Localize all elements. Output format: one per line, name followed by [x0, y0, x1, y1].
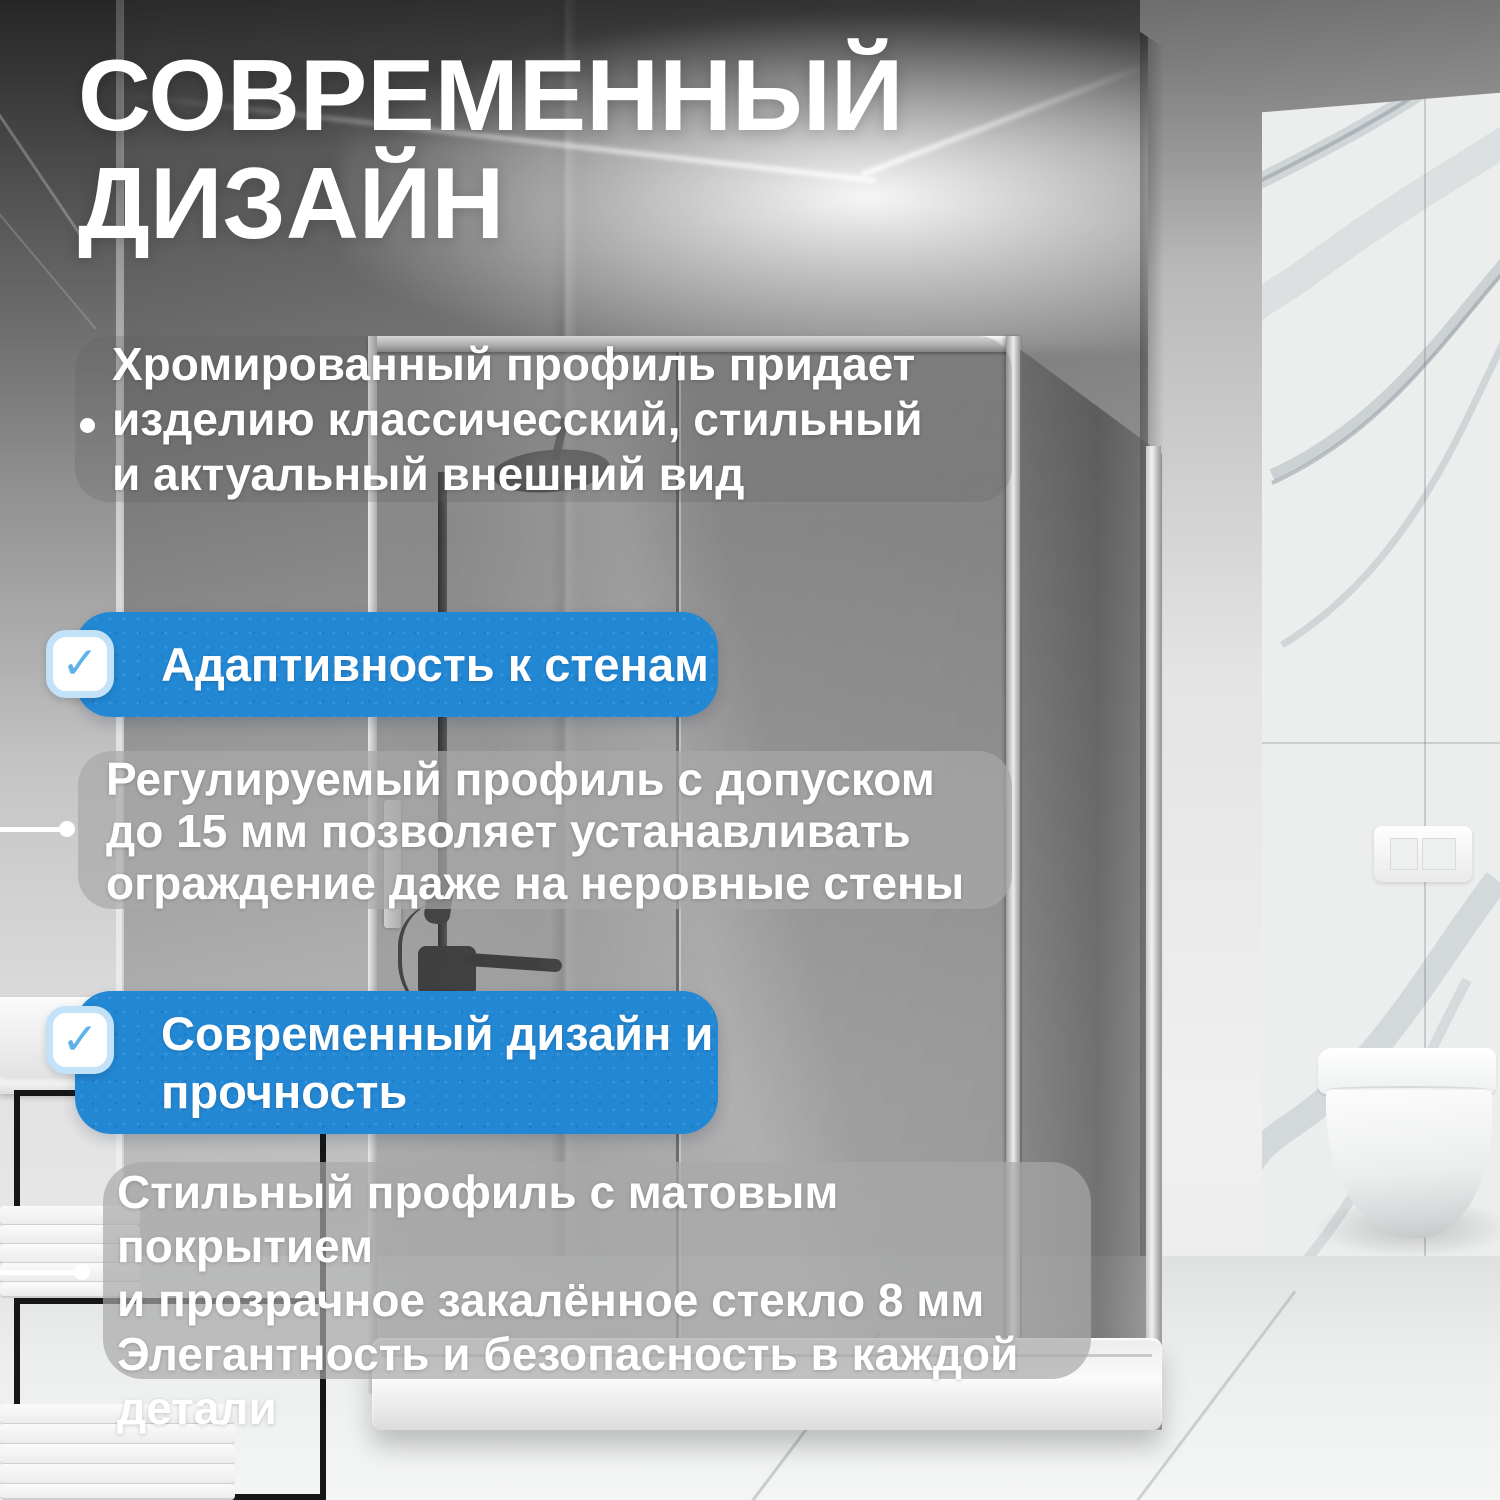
flush-plate [1374, 826, 1472, 882]
feature2-description: Стильный профиль с матовым покрытием и п… [117, 1165, 1097, 1435]
feature-badge-adaptivity: Адаптивность к стенам [75, 612, 718, 717]
check-icon: ✓ [62, 1018, 99, 1062]
feature1-description: Регулируемый профиль с допуском до 15 мм… [106, 753, 1036, 909]
checkbox-checked: ✓ [46, 630, 114, 698]
connector-line [0, 827, 62, 832]
checkbox-checked: ✓ [46, 1006, 114, 1074]
intro-paragraph: Хромированный профиль придает изделию кл… [112, 337, 1032, 502]
feature-badge-design: Современный дизайн и прочность [75, 991, 718, 1134]
bullet-point [80, 418, 95, 433]
tile-seam [1262, 742, 1500, 744]
flush-button [1390, 838, 1418, 870]
towel [0, 1484, 235, 1500]
bullet-point [59, 821, 75, 837]
flush-button [1422, 838, 1456, 870]
chrome-right-profile [1146, 446, 1161, 1430]
check-icon: ✓ [62, 642, 99, 686]
product-infographic: СОВРЕМЕННЫЙ ДИЗАЙН Хромированный профиль… [0, 0, 1500, 1500]
connector-line [0, 1270, 76, 1275]
towel [0, 1464, 235, 1485]
page-title: СОВРЕМЕННЫЙ ДИЗАЙН [78, 42, 1078, 258]
bullet-point [74, 1264, 90, 1280]
feature-badge-label: Современный дизайн и прочность [75, 1005, 713, 1121]
towel [0, 1444, 235, 1465]
feature-badge-label: Адаптивность к стенам [75, 636, 709, 694]
